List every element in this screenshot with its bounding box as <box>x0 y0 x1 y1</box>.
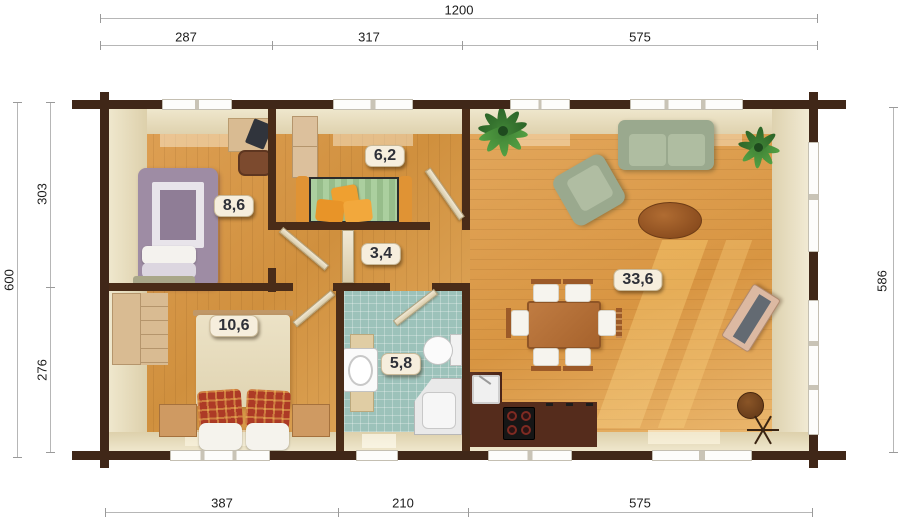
cooktop-burner <box>507 411 517 421</box>
bed-pillow <box>142 246 196 264</box>
window-kitchen <box>488 450 572 461</box>
window-living-top-2 <box>630 99 743 110</box>
bathroom-shelf <box>350 390 374 412</box>
sink-basin <box>348 355 373 386</box>
coffee-table <box>638 202 702 239</box>
dimension-line-left-segments <box>50 102 51 453</box>
dimension-tick <box>812 508 813 517</box>
dimension-label-right: 586 <box>875 267 890 295</box>
stool <box>737 392 764 419</box>
room-label-living: 33,6 <box>613 269 662 291</box>
floor-plan: 8,6 6,2 3,4 10,6 5,8 33,6 1200 287 317 5… <box>0 0 900 525</box>
potted-plant <box>476 104 530 158</box>
dining-chair <box>565 284 591 302</box>
dining-chair-back <box>563 366 593 371</box>
wall-hall-bottomrooms <box>109 283 293 291</box>
toilet-bowl <box>423 336 453 365</box>
dimension-label-left-1: 303 <box>35 180 50 208</box>
wall-kidsroom-hall <box>268 222 430 230</box>
white-pillow <box>199 423 242 450</box>
shower-inner <box>422 392 456 429</box>
wall-bedroom-bathroom <box>336 291 344 451</box>
room-label-hallway: 3,4 <box>361 243 401 265</box>
plant-center <box>754 143 763 152</box>
wardrobe-shelves <box>140 293 168 365</box>
nightstand <box>159 404 197 437</box>
window-bedroom-top <box>162 99 232 110</box>
dimension-tick <box>13 102 22 103</box>
dimension-label-top-total: 1200 <box>442 3 477 18</box>
potted-plant <box>736 124 782 170</box>
dimension-tick <box>462 41 463 50</box>
dining-table <box>527 301 601 349</box>
dimension-label-bottom-1: 387 <box>208 496 236 511</box>
daybed-pillow <box>343 199 373 224</box>
dimension-tick <box>889 107 898 108</box>
cooktop-burner <box>521 411 531 421</box>
cooktop-burner <box>521 425 531 435</box>
daybed-armrest <box>399 176 412 224</box>
dimension-line-top-segments <box>100 45 818 46</box>
sofa-cushion <box>668 134 705 166</box>
dimension-tick <box>817 14 818 23</box>
dining-chair-back <box>531 366 561 371</box>
plant-center <box>498 126 508 136</box>
wall-living-west-upper <box>462 109 470 230</box>
dimension-label-top-1: 287 <box>172 30 200 45</box>
window-living-right-lower <box>808 300 819 435</box>
window-kidsroom <box>333 99 413 110</box>
dimension-label-left-total: 600 <box>2 266 17 294</box>
dimension-label-bottom-3: 575 <box>626 496 654 511</box>
dining-chair-back <box>616 308 622 338</box>
desk-chair <box>238 150 272 176</box>
room-label-bedroom-bottom: 10,6 <box>209 315 258 337</box>
door-leaf-open-column <box>342 230 354 283</box>
dimension-line-right <box>893 107 894 453</box>
dimension-tick <box>13 457 22 458</box>
white-pillow <box>246 423 289 450</box>
daybed-armrest <box>296 176 309 224</box>
bed-blanket-pattern <box>152 182 204 248</box>
room-label-bedroom-top: 8,6 <box>214 195 254 217</box>
dimension-tick <box>46 452 55 453</box>
wardrobe-divider <box>292 146 318 147</box>
dimension-tick <box>468 508 469 517</box>
dimension-tick <box>100 14 101 23</box>
dimension-tick <box>272 41 273 50</box>
dining-chair <box>565 348 591 366</box>
window-living-bottom <box>652 450 752 461</box>
room-label-bathroom: 5,8 <box>381 353 421 375</box>
wall-hall-bottomrooms <box>333 283 390 291</box>
wall-bedroom-kidsroom <box>268 109 276 228</box>
dimension-tick <box>817 41 818 50</box>
nightstand <box>292 404 330 437</box>
dining-chair <box>511 310 529 336</box>
dimension-tick <box>46 287 55 288</box>
window-living-right-upper <box>808 142 819 252</box>
sofa-cushion <box>629 134 666 166</box>
dimension-line-bottom <box>105 512 813 513</box>
dining-chair <box>533 348 559 366</box>
dimension-label-top-3: 575 <box>626 30 654 45</box>
window-bathroom <box>356 450 398 461</box>
dimension-line-left-total <box>17 102 18 458</box>
dimension-tick <box>46 102 55 103</box>
daybed-pillow <box>315 199 345 224</box>
window-bedroom-bottom <box>170 450 270 461</box>
dimension-label-left-2: 276 <box>35 356 50 384</box>
cabinet-handle <box>546 403 553 406</box>
dimension-tick <box>100 41 101 50</box>
wall-living-west-lower <box>462 283 470 451</box>
dimension-label-bottom-2: 210 <box>389 496 417 511</box>
exterior-wall-left <box>100 92 109 468</box>
wall-hall-bottomrooms <box>432 283 462 291</box>
dining-chair <box>598 310 616 336</box>
cooktop-burner <box>507 425 517 435</box>
dimension-label-top-2: 317 <box>355 30 383 45</box>
dimension-tick <box>338 508 339 517</box>
dimension-tick <box>105 508 106 517</box>
cabinet-handle <box>566 403 573 406</box>
dining-chair <box>533 284 559 302</box>
small-wardrobe <box>292 116 318 178</box>
cabinet-handle <box>586 403 593 406</box>
dimension-line-top-total <box>100 18 818 19</box>
dimension-tick <box>889 452 898 453</box>
window-living-top-1 <box>510 99 570 110</box>
room-label-kidsroom: 6,2 <box>365 145 405 167</box>
